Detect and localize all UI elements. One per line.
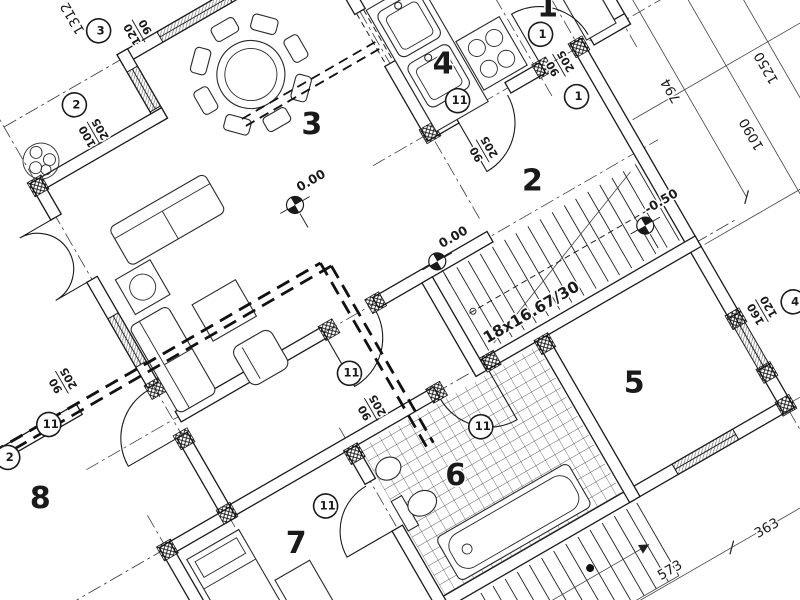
tag-number-1: 1: [539, 27, 547, 41]
dimension-value: 1312: [57, 0, 88, 37]
bed-icon: [187, 530, 289, 600]
room-label-1: 1: [537, 0, 558, 24]
floor-plan-svg: 794109012505733631312 123456783120902100…: [0, 0, 800, 600]
dimension-value: 794: [658, 75, 685, 105]
room-label-2: 2: [522, 163, 543, 198]
room-label-7: 7: [286, 526, 307, 561]
dimension-value: 1090: [736, 115, 767, 153]
level-value: 0.00: [294, 166, 328, 195]
blueprint-canvas: 794109012505733631312 123456783120902100…: [0, 0, 800, 600]
tag-number-11: 11: [320, 498, 336, 512]
tag-number-4: 4: [791, 294, 799, 308]
dimension-value: 1250: [751, 49, 782, 87]
tag-number-2: 2: [6, 450, 14, 464]
dimension-value: 573: [655, 557, 685, 584]
size-fraction: 160120: [744, 292, 781, 329]
dimension-value: 363: [752, 515, 782, 542]
room-label-3: 3: [301, 107, 322, 142]
room-label-8: 8: [30, 481, 51, 516]
tag-number-3: 3: [97, 23, 105, 37]
tag-number-11: 11: [343, 366, 359, 380]
tag-number-1: 1: [575, 89, 583, 103]
size-fraction: 90205: [464, 132, 501, 169]
double-door-leaf: [38, 251, 87, 300]
sofa-icon: [109, 173, 226, 266]
size-fraction: 90205: [44, 364, 81, 401]
tag-number-11: 11: [43, 417, 59, 431]
room-label-6: 6: [445, 458, 466, 493]
tag-number-2: 2: [72, 97, 80, 111]
room-label-4: 4: [433, 46, 454, 81]
tag-number-11: 11: [475, 419, 491, 433]
tag-number-11: 11: [452, 93, 468, 107]
side-table-icon: [115, 260, 170, 315]
room-label-5: 5: [624, 365, 645, 400]
dresser-icon: [275, 560, 340, 600]
double-door-leaf: [20, 220, 69, 269]
